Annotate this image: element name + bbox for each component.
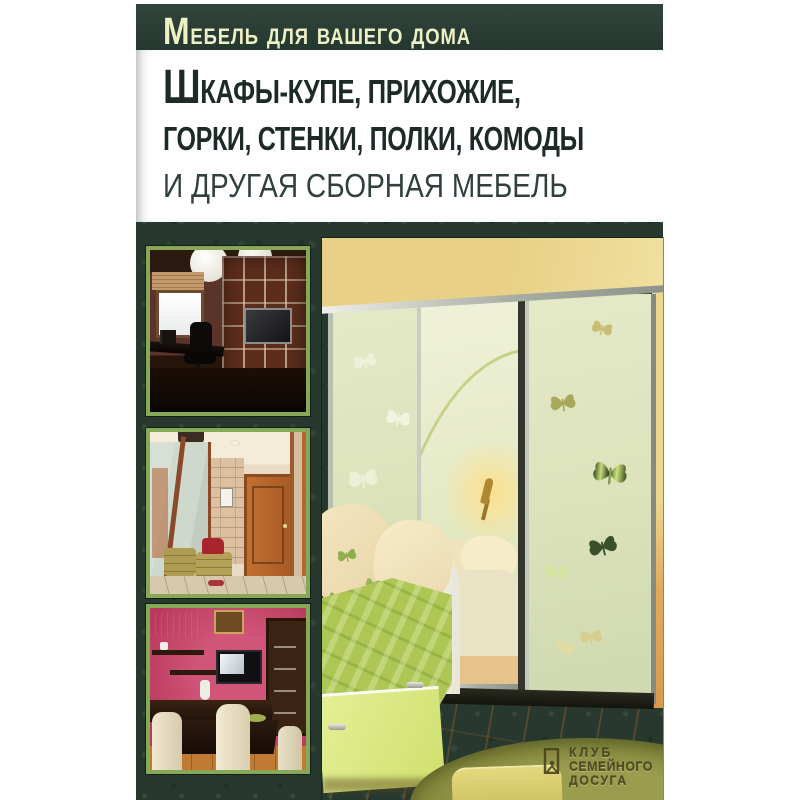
publisher-logo-line: КЛУБ: [569, 746, 613, 760]
dining-vase-branches: [200, 680, 210, 700]
hallway-red-bag: [202, 538, 224, 554]
office-chair-seat: [184, 352, 216, 364]
ksd-logo-icon: [543, 748, 563, 774]
butterfly-decal: [588, 454, 632, 494]
office-window-blind: [152, 272, 204, 290]
bed-drawer-handle: [328, 724, 346, 730]
hallway-door-panel: [252, 486, 284, 564]
series-title: Мебель для вашего дома: [163, 11, 583, 54]
hallway-slippers: [208, 580, 224, 586]
office-floor: [150, 368, 306, 412]
office-laptop: [160, 330, 176, 344]
hallway-intercom: [220, 488, 233, 507]
dining-shelf-decor: [160, 642, 168, 650]
publisher-logo-line: СЕМЕЙНОГО: [569, 760, 653, 774]
butterfly-decal: [540, 558, 571, 587]
photo-dining-room: [146, 604, 310, 774]
dining-chair: [278, 726, 302, 770]
pillow-butterfly-print: [334, 544, 359, 568]
butterfly-decal: [344, 462, 381, 496]
hallway-floor: [150, 576, 306, 594]
title-band: Шкафы-купе, прихожие, горки, стенки, пол…: [136, 50, 663, 222]
hallway-door-handle: [283, 524, 287, 528]
bed-drawer-handle: [406, 682, 424, 688]
butterfly-decal: [577, 625, 605, 650]
book-title-line-2: горки, стенки, полки, комоды: [163, 115, 543, 162]
dining-wall-shelf: [170, 670, 222, 675]
photo-hallway: [146, 428, 310, 598]
dining-chair: [152, 712, 182, 770]
butterfly-decal: [382, 404, 414, 434]
dining-wall-cabinet: [150, 612, 202, 638]
office-chair-back: [190, 322, 212, 356]
office-tv: [244, 308, 292, 344]
publisher-logo: КЛУБ СЕМЕЙНОГО ДОСУГА: [543, 746, 653, 792]
wardrobe-door-gap: [518, 293, 525, 703]
dining-picture-frame: [214, 610, 244, 634]
dining-chair: [216, 704, 250, 770]
dining-wall-shelf: [152, 650, 204, 655]
book-title-line-1: Шкафы-купе, прихожие,: [163, 64, 553, 115]
book-title-line-3: и другая сборная мебель: [163, 162, 588, 209]
dining-cabinet-glass: [274, 626, 296, 718]
hallway-reflected-door: [152, 468, 168, 558]
hallway-ottoman: [164, 548, 196, 576]
publisher-logo-line: ДОСУГА: [569, 774, 628, 788]
photo-home-office: [146, 246, 310, 416]
hallway-right-mirror: [290, 432, 306, 594]
butterfly-decal: [546, 388, 579, 419]
photo-wardrobe-bedroom: КЛУБ СЕМЕЙНОГО ДОСУГА: [322, 238, 663, 800]
series-header-bar: Мебель для вашего дома: [136, 4, 663, 52]
hallway-ceiling-light: [230, 440, 240, 446]
dining-tv-screen: [220, 654, 244, 674]
book-cover: Мебель для вашего дома Шкафы-купе, прихо…: [136, 4, 663, 800]
